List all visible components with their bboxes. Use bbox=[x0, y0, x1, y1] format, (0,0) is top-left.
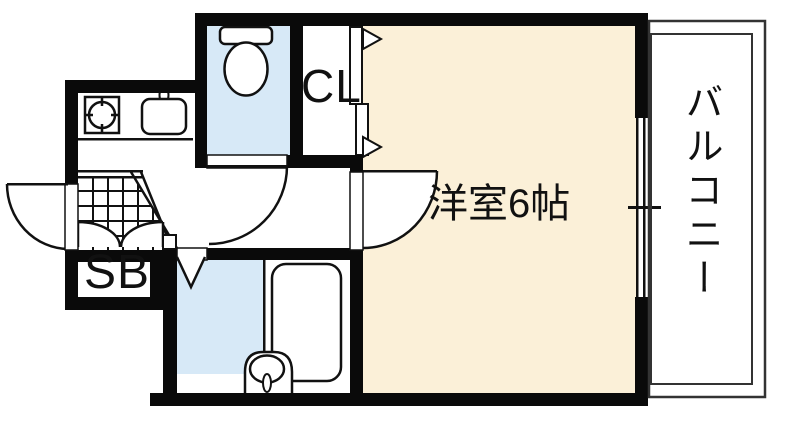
toilet-door-leaf bbox=[207, 165, 287, 168]
wall-segment bbox=[195, 13, 207, 168]
wall-segment bbox=[207, 248, 363, 260]
genkan-step-line bbox=[78, 170, 143, 173]
balcony-label: バルコニー bbox=[681, 82, 719, 302]
wall-segment bbox=[65, 80, 195, 93]
wall-segment bbox=[350, 250, 363, 406]
toilet bbox=[220, 27, 272, 96]
main-room-door-opening bbox=[350, 172, 363, 250]
kitchen-sink bbox=[142, 99, 186, 134]
toilet-bowl bbox=[225, 43, 268, 96]
main-room-label: 洋室6帖 bbox=[428, 184, 570, 224]
wall-segment bbox=[150, 393, 648, 406]
window-center-tick bbox=[628, 206, 661, 209]
wall-segment bbox=[635, 13, 648, 118]
wall-segment bbox=[163, 248, 177, 406]
wash-basin-faucet-icon bbox=[263, 374, 271, 392]
floor-plan: CL SB 洋室6帖 バルコニー bbox=[0, 0, 800, 438]
wall-segment bbox=[195, 13, 648, 26]
kitchen bbox=[78, 87, 193, 141]
kitchen-counter-edge bbox=[78, 138, 193, 141]
main-room-door-leaf bbox=[363, 170, 437, 173]
wall-segment bbox=[150, 250, 163, 310]
entrance-door-leaf bbox=[7, 183, 68, 186]
wall-segment bbox=[635, 297, 648, 406]
shoe-box-label: SB bbox=[84, 249, 150, 297]
closet-label: CL bbox=[301, 63, 362, 109]
entrance-opening bbox=[65, 184, 78, 250]
wall-segment bbox=[65, 80, 78, 185]
genkan-post bbox=[163, 235, 176, 249]
